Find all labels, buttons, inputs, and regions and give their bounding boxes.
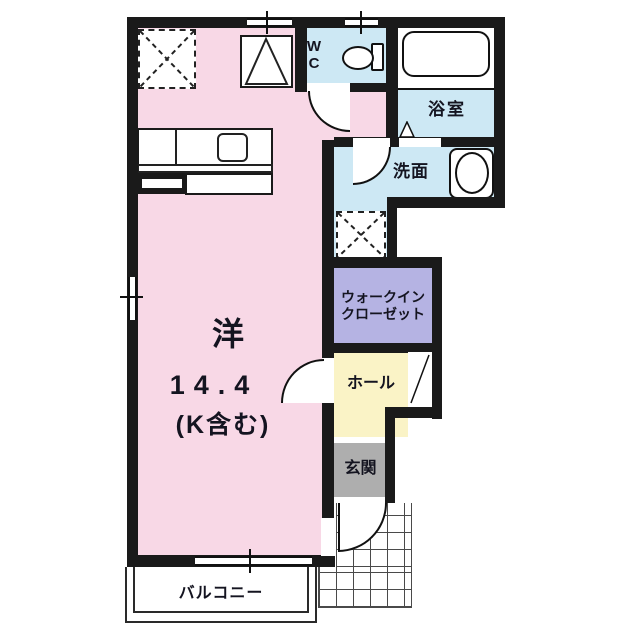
entrance-label: 玄関 (334, 459, 387, 479)
washroom-door-leaf (353, 138, 390, 147)
washing-machine-dashed-square (336, 211, 386, 259)
window-left-tick (120, 296, 143, 298)
window-top-main (247, 18, 292, 27)
kitchen-counter-front-edge (137, 164, 273, 173)
walk-in-closet-label-line1: ウォークイン (341, 289, 425, 306)
wall-right-upper (494, 17, 505, 208)
bathroom-door-opening (399, 138, 441, 147)
window-top-wc-tick (360, 11, 362, 34)
hall-label: ホール (334, 374, 408, 394)
closet-door (408, 352, 432, 407)
kitchen-counter-divider (175, 130, 177, 164)
kitchen-counter-lower (185, 173, 273, 195)
washroom-label: 洗面 (385, 162, 437, 182)
kitchen-sink (217, 133, 248, 162)
main-room-name: 洋 (198, 315, 258, 353)
bathroom-label: 浴室 (417, 100, 477, 120)
kitchen-partition-slot (142, 179, 182, 188)
wall-stub-vertical (387, 197, 397, 262)
walk-in-closet-label: ウォークイン クローゼット (334, 281, 432, 331)
wall-wc-bathroom (386, 27, 398, 147)
wall-closet-top (324, 257, 442, 268)
wall-top (127, 17, 505, 28)
walk-in-closet-label-line2: クローゼット (341, 306, 425, 323)
wall-column-upper (322, 140, 334, 358)
window-balcony-tick (249, 549, 251, 573)
window-balcony-sliding (195, 556, 312, 566)
window-left (128, 277, 137, 320)
hall-floor (334, 353, 408, 437)
porch-tile-grid-lower (318, 567, 412, 608)
bathroom-folding-door-icon (399, 121, 415, 138)
refrigerator-symbol (240, 35, 293, 88)
main-room-area: 14.4 (149, 370, 279, 400)
kitchen-counter (137, 128, 273, 166)
wall-column-opening (321, 518, 335, 556)
window-top-main-tick (266, 11, 268, 34)
vanity-sink-bowl (455, 152, 489, 194)
wall-closet-right (432, 257, 442, 419)
bathtub (402, 31, 490, 77)
main-room-area-note: (K含む) (143, 410, 303, 440)
wall-washroom-bottom (387, 197, 505, 208)
floor-plan: W C 浴室 洗面 ウォークイン クローゼット ホール 玄関 バルコニー 洋 1… (0, 0, 625, 640)
service-space-dashed-square (138, 29, 196, 89)
wc-label: W C (299, 35, 329, 75)
wall-hall-bottom-right (385, 407, 442, 418)
toilet-bowl (342, 46, 374, 70)
balcony-label: バルコニー (133, 584, 309, 604)
